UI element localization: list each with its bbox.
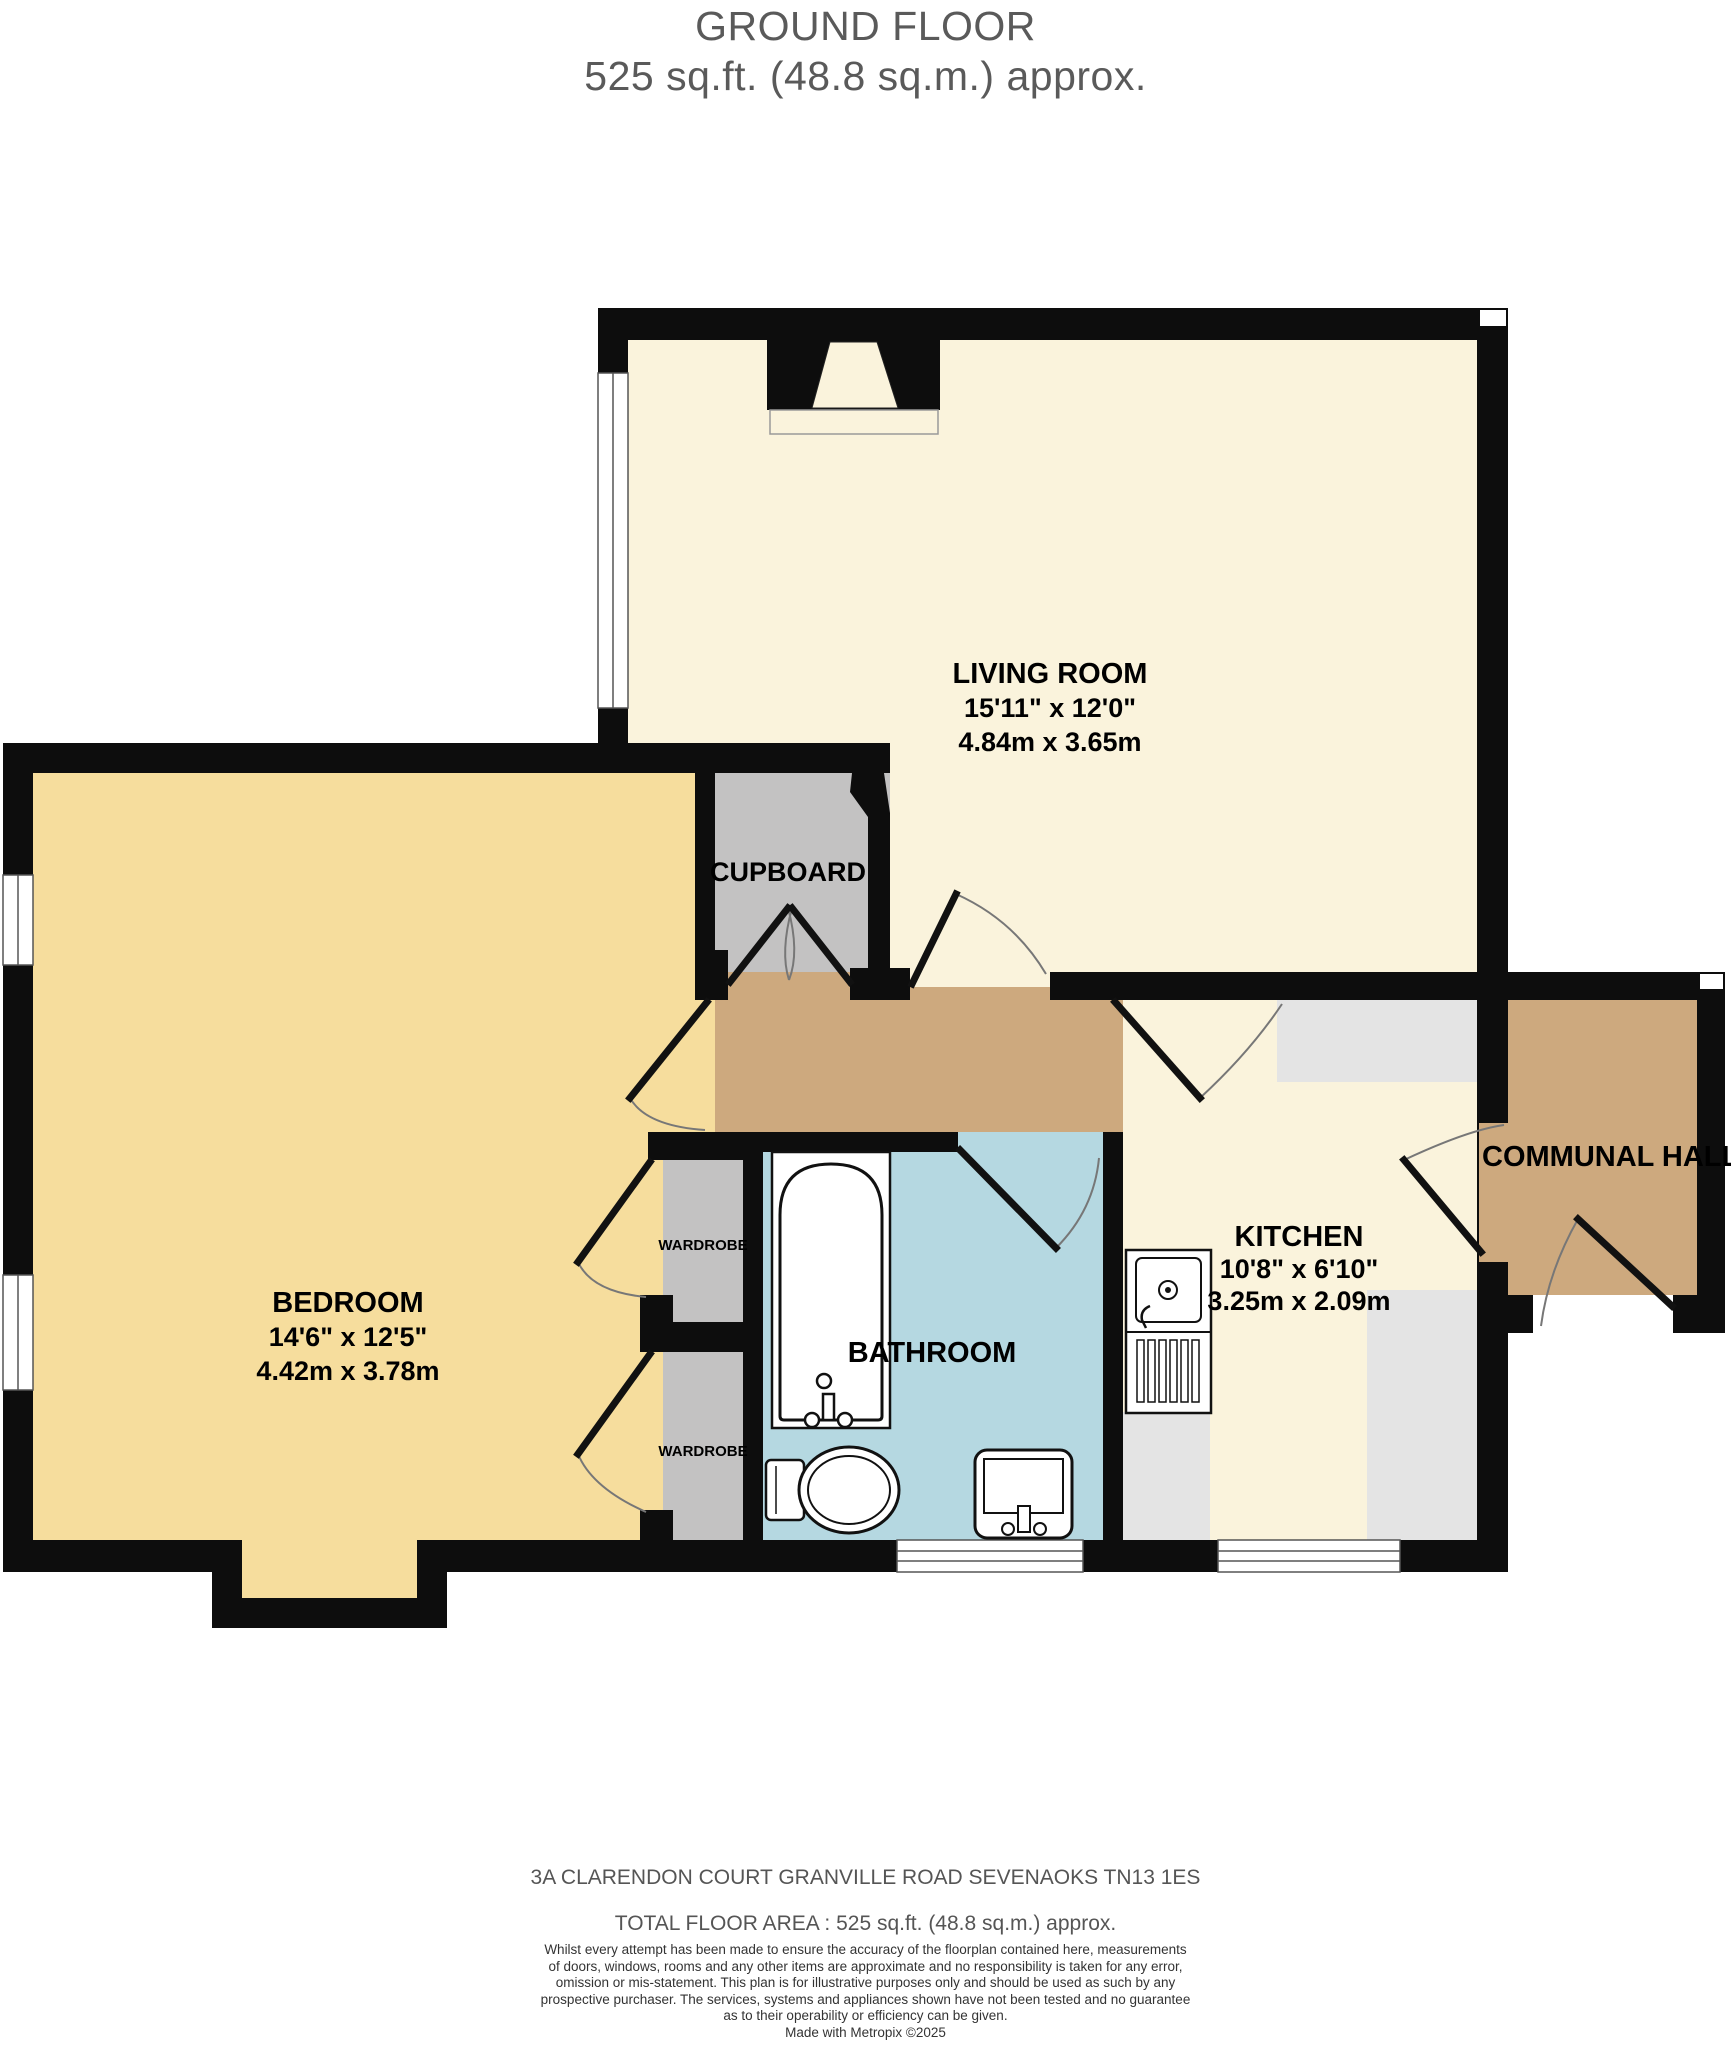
total-floor-area: TOTAL FLOOR AREA : 525 sq.ft. (48.8 sq.m…: [0, 1912, 1731, 1936]
drainer-bar: [1170, 1340, 1177, 1402]
disclaimer-line: of doors, windows, rooms and any other i…: [0, 1959, 1731, 1976]
wall-notch-communal: [1700, 974, 1723, 989]
kitchen-counter-top: [1277, 1000, 1477, 1082]
floorplan-page: GROUND FLOOR 525 sq.ft. (48.8 sq.m.) app…: [0, 0, 1731, 2048]
room-floor-bedroom-bay: [242, 1540, 417, 1598]
living-room-doorway-gap-lower: [910, 987, 1050, 1000]
disclaimer: Whilst every attempt has been made to en…: [0, 1942, 1731, 2042]
kitchen-sink-faucet-dot: [1165, 1287, 1171, 1293]
label-wardrobe-1: WARDROBE: [658, 1237, 747, 1254]
kitchen-counter-right: [1367, 1290, 1477, 1540]
bedroom-doorway-floor: [695, 1000, 715, 1132]
label-kitchen-imperial: 10'8" x 6'10": [1220, 1254, 1379, 1284]
property-address: 3A CLARENDON COURT GRANVILLE ROAD SEVENA…: [0, 1866, 1731, 1890]
label-wardrobe-2: WARDROBE: [658, 1443, 747, 1460]
window-bathroom-bottom: [897, 1540, 1083, 1572]
label-living-room-imperial: 15'11" x 12'0": [964, 693, 1136, 723]
bathtub-tap-knob: [838, 1413, 852, 1427]
wall-notch-top-right: [1480, 310, 1506, 326]
bathroom-doorway-gap: [958, 1132, 1103, 1152]
label-living-room-metric: 4.84m x 3.65m: [958, 727, 1141, 757]
bathtub-drain: [817, 1374, 831, 1388]
living-room-doorway-gap: [910, 972, 1050, 987]
label-bathroom: BATHROOM: [848, 1337, 1017, 1369]
floorplan-canvas: LIVING ROOM 15'11" x 12'0" 4.84m x 3.65m…: [0, 0, 1731, 2048]
drainer-bar: [1192, 1340, 1199, 1402]
kitchen-counter-left: [1123, 1412, 1210, 1540]
basin-tap-knob: [1034, 1523, 1046, 1535]
hearth: [770, 410, 938, 434]
window-kitchen-bottom: [1218, 1540, 1400, 1572]
label-bedroom-imperial: 14'6" x 12'5": [269, 1322, 428, 1352]
label-kitchen: KITCHEN: [1235, 1221, 1364, 1253]
label-living-room: LIVING ROOM: [953, 658, 1148, 690]
drainer-bar: [1137, 1340, 1144, 1402]
label-kitchen-metric: 3.25m x 2.09m: [1207, 1286, 1390, 1316]
disclaimer-line: Whilst every attempt has been made to en…: [0, 1942, 1731, 1959]
basin-tap-knob: [1002, 1523, 1014, 1535]
basin-tap: [1018, 1506, 1030, 1532]
bathtub-tap: [823, 1394, 834, 1420]
toilet-seat: [808, 1456, 890, 1524]
kitchen-sink-unit: [1126, 1250, 1211, 1413]
label-bedroom-metric: 4.42m x 3.78m: [256, 1356, 439, 1386]
disclaimer-line: as to their operability or efficiency ca…: [0, 2008, 1731, 2025]
label-communal-hall: COMMUNAL HALL: [1482, 1141, 1731, 1173]
drainer-bar: [1159, 1340, 1166, 1402]
disclaimer-line: omission or mis-statement. This plan is …: [0, 1975, 1731, 1992]
drainer-bar: [1181, 1340, 1188, 1402]
disclaimer-line: prospective purchaser. The services, sys…: [0, 1992, 1731, 2009]
floorplan-svg: LIVING ROOM 15'11" x 12'0" 4.84m x 3.65m…: [0, 0, 1731, 2048]
drainer-bar: [1148, 1340, 1155, 1402]
credit-line: Made with Metropix ©2025: [0, 2025, 1731, 2042]
label-cupboard: CUPBOARD: [710, 857, 866, 887]
label-bedroom: BEDROOM: [272, 1287, 423, 1319]
bathtub-tap-knob: [805, 1413, 819, 1427]
